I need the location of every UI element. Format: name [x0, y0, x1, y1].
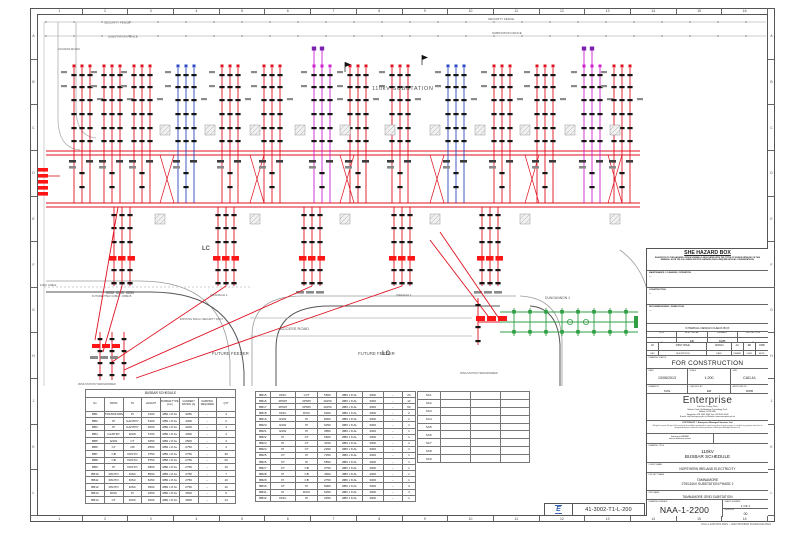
table-row: BB3PIGANTRY4000Ø80 x 8 AL4200–4 — [86, 424, 236, 431]
table-header: DAMPING REQUIRED — [198, 397, 217, 411]
drawing-title-line-2: BUSBAR SCHEDULE — [647, 454, 768, 459]
table-row: BB8CBPANTO5750Ø80 x 8 AL2750–20 — [86, 457, 236, 464]
grid-col-label: 8 — [357, 516, 403, 522]
grid-col-label: 13 — [585, 516, 631, 522]
note-box: Drawing to BS8888 unless otherwise state… — [647, 434, 768, 444]
revision-label: REVISION — [725, 509, 735, 511]
grid-row-label: D — [768, 151, 775, 197]
creagh-circuit-label: CREAGH 1 — [396, 293, 412, 297]
drawn-checked-approved-row: DRAWN BY SJW CHECKED BY EB APPROVED BY D… — [647, 385, 768, 394]
date-value: 13/06/2013 — [647, 376, 687, 380]
grid-row-label: A — [30, 14, 37, 60]
table-row: BB4GANTRYESW5700Ø80 x 8 AL4300–4 — [86, 431, 236, 438]
drawn-by-label: DRAWN BY — [649, 386, 660, 388]
grid-row-label: G — [768, 288, 775, 334]
grid-row-label: A — [768, 14, 775, 60]
grid-row-label: B — [768, 60, 775, 106]
stamp-drawing-number: 41-3002-T1-L-200 — [573, 504, 644, 515]
client-section: CLIENT NAME NORTHERN IRELAND ELECTRICITY — [647, 463, 768, 473]
revision-value: 00 — [723, 512, 768, 516]
grid-row-label: K — [768, 425, 775, 471]
grid-col-label: 9 — [403, 516, 449, 522]
busbar-schedule-table-2: BB15DISCCVT5500Ø80 x 8 AL3300–24BB162PNP… — [255, 391, 416, 502]
grid-row-label: E — [30, 197, 37, 243]
table-title: BUSBAR SCHEDULE — [86, 390, 236, 398]
drawing-title-section: DRAWING TITLE 110kV BUSBAR SCHEDULE — [647, 444, 768, 463]
table-header: TO — [123, 397, 142, 411]
she-construction-value: --- — [647, 291, 768, 295]
rev-value-appd: DWB — [756, 343, 768, 350]
drawn-by-value: SJW — [647, 389, 687, 393]
internal-design-check-box: INTERNAL DESIGN CHECK BOX CIVIL ELECTRIC… — [647, 324, 768, 343]
she-maintenance-section: MAINTENANCE / CLEANING / OPERATION --- — [647, 271, 768, 288]
check-col-primary: PRIMARY — [708, 332, 738, 337]
size-value: CAD A1 — [731, 376, 768, 380]
rev-value-drawn: AA — [732, 343, 744, 350]
stamp-box: E 41-3002-T1-L-200 — [544, 503, 645, 516]
project-section: PROJECT NAME TAMNAMORE 275/110kV SUBSTAT… — [647, 473, 768, 491]
client-value: NORTHERN IRELAND ELECTRICITY — [647, 467, 768, 471]
site-section: SITE NAME TAMNAMORE GRID SUBSTATION — [647, 491, 768, 500]
access-road-label-mid: ACCESS ROAD — [280, 326, 309, 331]
drawing-status-value: FOR CONSTRUCTION — [647, 360, 768, 367]
grid-row-label: J — [768, 379, 775, 425]
grid-row-label: C — [30, 105, 37, 151]
grid-col-label: 12 — [540, 516, 586, 522]
access-road-label-top: ACCESS ROAD — [58, 47, 81, 51]
drawing-number-section: DRAWING NUMBER NAA-1-2200 SHEET NUMBER 1… — [647, 500, 768, 517]
grid-col-label: 4 — [174, 516, 220, 522]
table-row: SC1 — [418, 392, 530, 400]
copyright-body: All rights reserved. No part of this wor… — [647, 424, 768, 429]
table-row: SC7 — [418, 439, 530, 447]
dungannon-circuit-label: DUNGANNON 1 — [545, 296, 570, 300]
busbar-schedule-table-1: BUSBAR SCHEDULENoFROMTOLENGTHBUSBAR TYPE… — [85, 389, 236, 504]
cranagh-circuit-label: CRANAGH 1 — [210, 293, 228, 297]
table-header: BUSBAR TYPE (mm) — [161, 397, 180, 411]
client-label: CLIENT NAME — [649, 464, 662, 466]
security-fence-label-left: SECURITY FENCE — [104, 21, 130, 25]
grid-row-label: L — [768, 470, 775, 516]
grid-row-label: H — [30, 333, 37, 379]
table-row: SC5 — [418, 423, 530, 431]
she-construction-section: CONSTRUCTION --- — [647, 288, 768, 305]
approved-by-label: APPROVED BY — [733, 386, 747, 388]
drawing-status-label: DRAWING STATUS — [649, 357, 667, 359]
company-contact: E-mail: info@enterprise.plc.uk Website: … — [647, 416, 768, 419]
drawing-number-value: NAA-1-2200 — [647, 505, 722, 515]
rev-value-description: FIRST ISSUE — [659, 343, 707, 350]
rev-value-date: 13/06/13 — [707, 343, 731, 350]
security-fence-label-right: SECURITY FENCE — [488, 17, 514, 21]
grid-row-label: H — [768, 333, 775, 379]
revision-table: 0A FIRST ISSUE 13/06/13 AA EB DWB REV DE… — [647, 343, 768, 356]
grid-col-label: 3 — [128, 516, 174, 522]
table-row: BB6CTCB2500Ø80 x 8 AL2750–4 — [86, 444, 236, 451]
check-box-title: INTERNAL DESIGN CHECK BOX — [647, 326, 768, 330]
note-line-2: unless otherwise stated — [647, 438, 713, 440]
drawing-number-label: DRAWING NUMBER — [649, 501, 668, 503]
title-block: SHE HAZARD BOX IN ADDITION TO THE HAZARD… — [646, 248, 768, 516]
table-header: QTY — [217, 397, 236, 411]
enterprise-logo-glyph: E — [555, 505, 562, 514]
check-col-protection: PROTECTION — [738, 332, 768, 337]
table-row: BB14CTDISC2500Ø80 x 8 AL3500–14 — [86, 497, 236, 504]
she-body: IN ADDITION TO THE HAZARDS / RISKS NORMA… — [647, 256, 768, 262]
sheet-number-label: SHEET NUMBER — [725, 501, 741, 503]
grid-row-label: F — [768, 242, 775, 288]
she-maintenance-value: --- — [647, 274, 768, 278]
grid-col-label: 7 — [311, 516, 357, 522]
table-row: BB2PIGANTRY5100Ø80 x 8 AL4300–2 — [86, 418, 236, 425]
she-decommissioning-value: --- — [647, 308, 768, 312]
grid-row-label: B — [30, 60, 37, 106]
scale-label: SCALE — [690, 370, 697, 372]
drawing-status-section: DRAWING STATUS FOR CONSTRUCTION — [647, 356, 768, 369]
size-label: SIZE — [733, 370, 737, 372]
site-label: SITE NAME — [649, 492, 660, 494]
table-row: SC6 — [418, 431, 530, 439]
grid-col-label: 6 — [265, 516, 311, 522]
grid-row-label: E — [768, 197, 775, 243]
grid-col-label: 5 — [220, 516, 266, 522]
checked-by-label: CHECKED BY — [690, 386, 703, 388]
drawing-title-label: DRAWING TITLE — [649, 445, 665, 447]
table-row: BB5ESWCT3250Ø80 x 8 AL2500–4 — [86, 437, 236, 444]
table-header: CURRENT RATING (A) — [179, 397, 198, 411]
grid-row-label: D — [30, 151, 37, 197]
date-scale-size-row: DATE 13/06/2013 SCALE 1:200 SIZE CAD A1 — [647, 369, 768, 385]
table-row: BB12PANTODISC3500Ø80 x 8 AL2750–10 — [86, 484, 236, 491]
she-decommissioning-section: DECOMMISSIONING / DEMOLITION --- — [647, 305, 768, 324]
table-row: SC8 — [418, 447, 530, 455]
scale-value: 1:200 — [688, 376, 730, 380]
table-row: SC9 — [418, 455, 530, 463]
table-row: BB7CBPANTO3750Ø80 x 8 AL2750–30 — [86, 451, 236, 458]
grid-row-label: G — [30, 288, 37, 334]
grid-ruler-left: ABCDEFGHJKL — [30, 14, 37, 516]
date-label: DATE — [649, 370, 654, 372]
site-value: TAMNAMORE GRID SUBSTATION — [647, 495, 768, 499]
table-header: No — [86, 397, 105, 411]
cable-110kv-label: 110kV CABLE — [40, 283, 57, 287]
grid-row-label: K — [30, 425, 37, 471]
approved-by-value: DWB — [731, 389, 768, 393]
lc-mark-1: LC — [202, 246, 211, 252]
grid-col-label: 2 — [83, 516, 129, 522]
substation-fence-label-left: SUBSTATION FENCE — [108, 35, 138, 39]
security-duct-label: EXISTING 500mm SECURITY DUCT — [180, 317, 224, 321]
sc-schedule-table: SC1SC2SC3SC4SC5SC6SC7SC8SC9 — [417, 391, 530, 463]
table-row: BB9PIPANTO4800Ø80 x 8 AL2750–10 — [86, 464, 236, 471]
checked-by-value: EB — [688, 389, 730, 393]
station-transformer-label-1: 2MVA STATION TRANSFORMER — [78, 383, 116, 386]
substation-fence-label-right: SUBSTATION FENCE — [492, 31, 522, 35]
table-header: FROM — [104, 397, 123, 411]
rev-value-chkd: EB — [744, 343, 756, 350]
file-reference: NAA-1-2200 R00.DWG - 110kV BUSBAR SCHEDU… — [616, 523, 771, 526]
grid-row-label: F — [30, 242, 37, 288]
table-header: LENGTH — [142, 397, 161, 411]
project-line-2: 275/110kV SUBSTATION PHASE 2 — [647, 482, 768, 486]
grid-row-label: L — [30, 470, 37, 516]
project-label: PROJECT NAME — [649, 474, 665, 476]
grid-col-label: 1 — [37, 516, 83, 522]
table-row: BB11PANTODISC6250Ø80 x 8 AL2750–10 — [86, 477, 236, 484]
company-block: Enterprise 3rd Floor, Victory Plant, Nel… — [647, 394, 768, 421]
table-row: BB32DISCPI3250Ø80 x 8 AL3300–1 — [256, 495, 416, 501]
check-col-civil: CIVIL — [647, 332, 677, 337]
table-row: SC3 — [418, 407, 530, 415]
table-row: SC2 — [418, 399, 530, 407]
company-name: Enterprise — [647, 395, 768, 406]
check-col-electrical: ELECTRICAL — [677, 332, 707, 337]
lc-mark-2: LC — [382, 351, 391, 357]
sheet-number-value: 1 OF 1 — [723, 504, 768, 508]
she-hazard-box: SHE HAZARD BOX IN ADDITION TO THE HAZARD… — [647, 249, 768, 271]
future-cable-label: FUTURE 275kV CABLE - WIRE B — [92, 294, 132, 298]
grid-row-label: J — [30, 379, 37, 425]
table-row: BB13DISCPI3250Ø80 x 8 AL3500–9 — [86, 490, 236, 497]
copyright-block: COPYRIGHT © Enterprise Managed Services … — [647, 421, 768, 434]
grid-col-label: 10 — [448, 516, 494, 522]
substation-label: 110kV SUBSTATION — [372, 86, 434, 92]
table-row: BB1TRANSFORMERPI3100Ø80 x 8 AL3250–4 — [86, 411, 236, 418]
grid-col-label: 11 — [494, 516, 540, 522]
station-transformer-label-2: 2MVA STATION TRANSFORMER — [460, 372, 498, 375]
drawing-sheet: 12345678910111213141516 1234567891011121… — [0, 0, 800, 533]
future-feeder-label-1: FUTURE FEEDER — [212, 351, 249, 356]
table-row: SC4 — [418, 415, 530, 423]
table-row: BB10PANTODISC8500Ø80 x 8 AL2750–7 — [86, 470, 236, 477]
enterprise-logo-icon: E — [545, 504, 573, 515]
grid-row-label: C — [768, 105, 775, 151]
rev-value-rev: 0A — [647, 343, 659, 350]
grid-ruler-right: ABCDEFGHJKL — [768, 14, 775, 516]
